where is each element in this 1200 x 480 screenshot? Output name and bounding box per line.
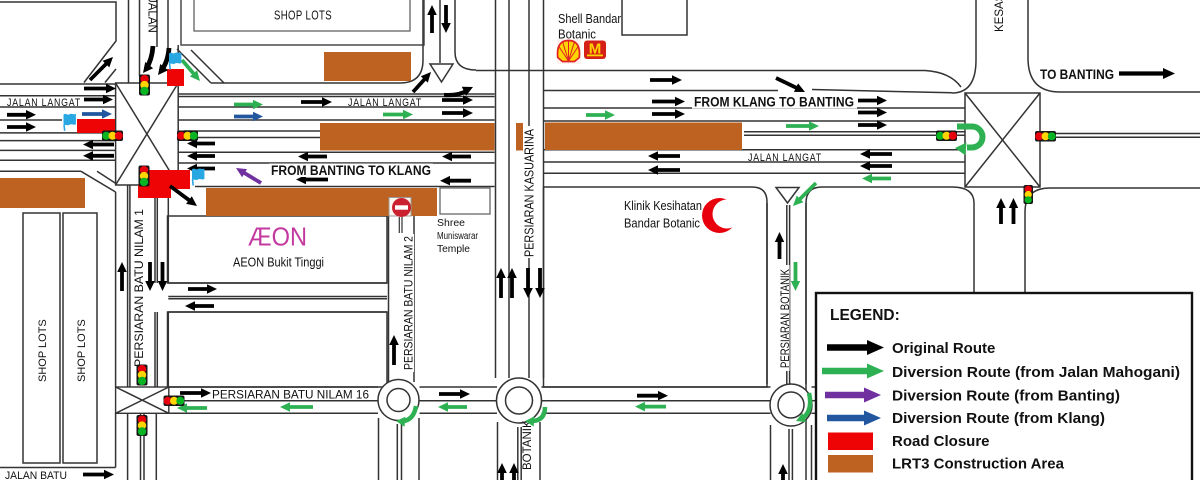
svg-text:Muniswarar: Muniswarar (437, 231, 479, 242)
svg-text:KESAS: KESAS (994, 0, 1006, 32)
svg-text:TO BANTING: TO BANTING (1040, 66, 1114, 82)
svg-text:Botanic: Botanic (558, 28, 596, 42)
svg-text:PERSIARAN BATU NILAM 1: PERSIARAN BATU NILAM 1 (134, 209, 146, 367)
svg-text:JALAN LANGAT: JALAN LANGAT (348, 97, 422, 109)
svg-text:Diversion Route (from Jalan Ma: Diversion Route (from Jalan Mahogani) (892, 364, 1180, 381)
svg-text:JALAN: JALAN (146, 0, 158, 33)
svg-text:Klinik Kesihatan: Klinik Kesihatan (624, 199, 702, 213)
svg-text:Shell Bandar: Shell Bandar (558, 12, 621, 26)
svg-text:SHOP LOTS: SHOP LOTS (274, 9, 332, 23)
svg-text:Temple: Temple (437, 244, 470, 255)
svg-text:SHOP LOTS: SHOP LOTS (37, 319, 49, 382)
svg-text:PERSIARAN BATU NILAM 2: PERSIARAN BATU NILAM 2 (404, 236, 416, 370)
svg-text:SHOP LOTS: SHOP LOTS (76, 319, 88, 382)
svg-text:Bandar Botanic: Bandar Botanic (624, 217, 700, 231)
svg-text:PERSIARAN BATU NILAM 16: PERSIARAN BATU NILAM 16 (212, 390, 369, 402)
svg-text:Shree: Shree (437, 218, 465, 229)
svg-text:Road Closure: Road Closure (892, 433, 990, 450)
svg-text:ÆON: ÆON (248, 222, 307, 252)
svg-text:JALAN LANGAT: JALAN LANGAT (748, 152, 822, 164)
svg-text:FROM BANTING TO KLANG: FROM BANTING TO KLANG (271, 163, 431, 178)
svg-text:JALAN LANGAT: JALAN LANGAT (7, 97, 81, 109)
svg-text:LRT3 Construction Area: LRT3 Construction Area (892, 456, 1065, 473)
svg-text:FROM KLANG TO BANTING: FROM KLANG TO BANTING (694, 95, 854, 110)
svg-text:LEGEND:: LEGEND: (830, 307, 900, 324)
svg-text:AEON Bukit Tinggi: AEON Bukit Tinggi (233, 256, 324, 270)
svg-text:Diversion Route (from Banting): Diversion Route (from Banting) (892, 388, 1120, 405)
svg-text:BOTANIK: BOTANIK (522, 420, 534, 470)
svg-text:PERSIARAN BOTANIK: PERSIARAN BOTANIK (780, 269, 792, 368)
svg-text:Diversion Route (from Klang): Diversion Route (from Klang) (892, 410, 1105, 427)
svg-text:PERSIARAN KASUARINA: PERSIARAN KASUARINA (523, 128, 537, 257)
svg-text:Original Route: Original Route (892, 340, 995, 357)
svg-text:JALAN BATU: JALAN BATU (5, 470, 67, 480)
